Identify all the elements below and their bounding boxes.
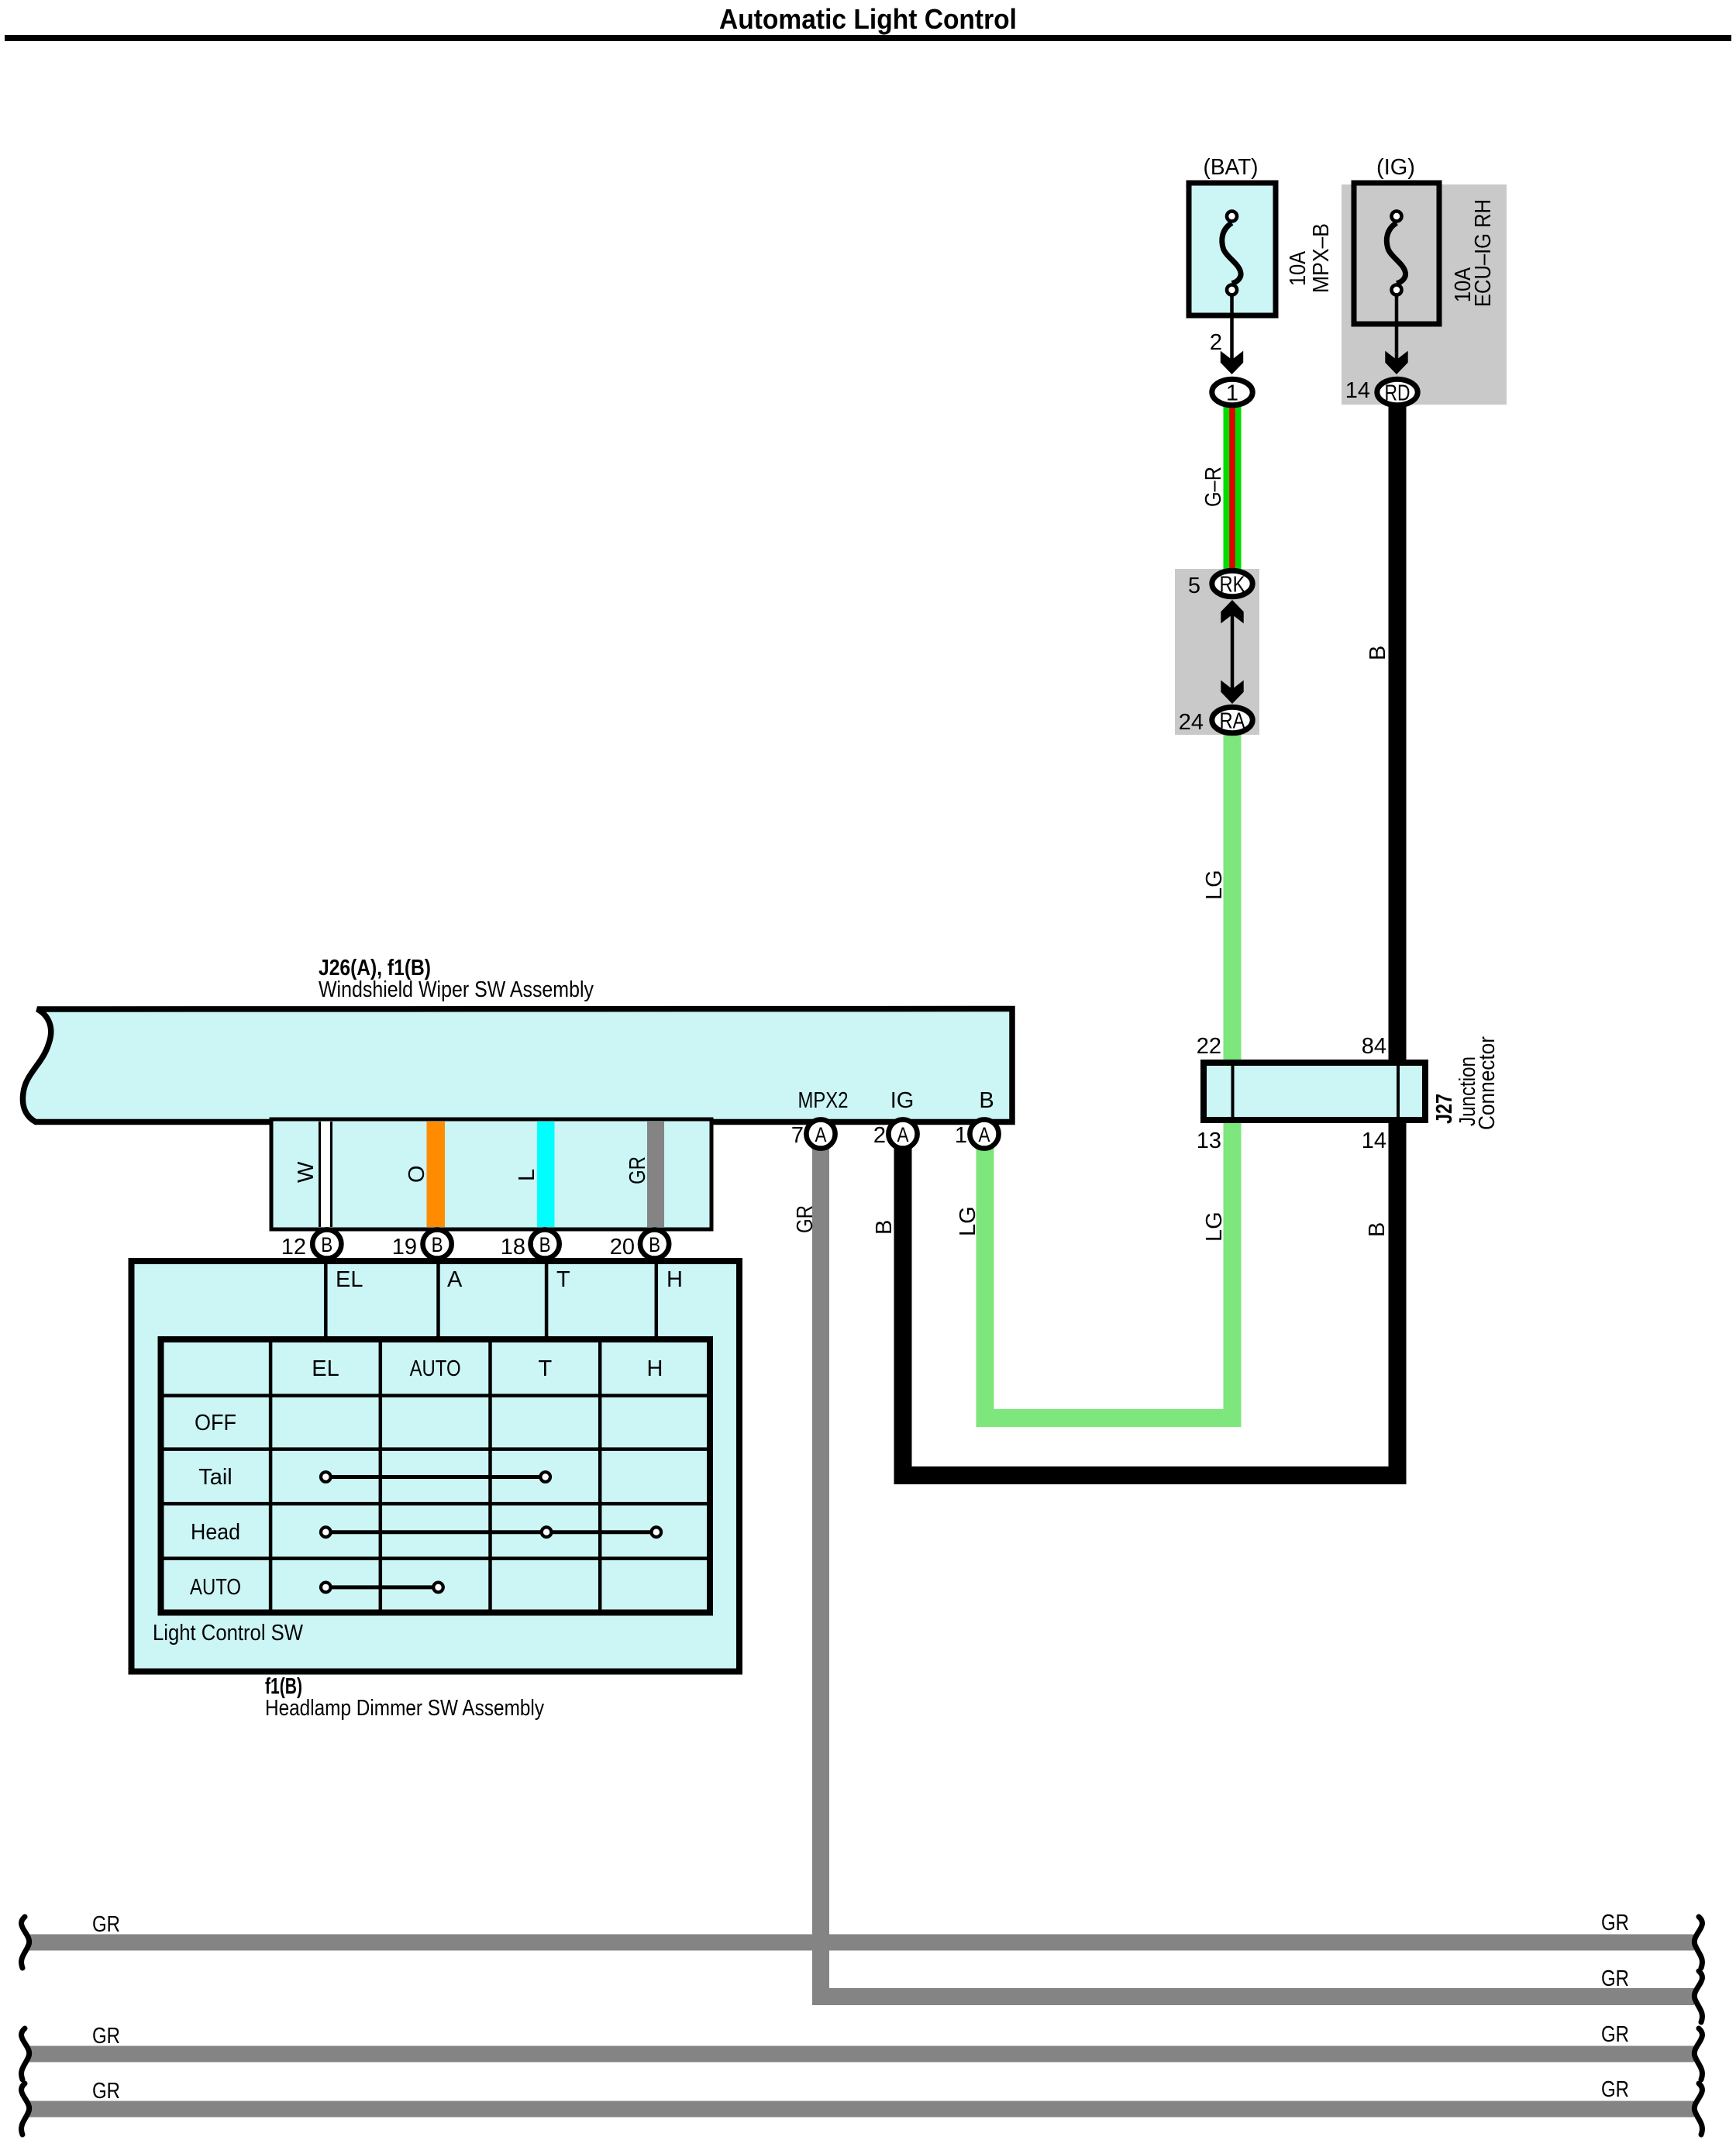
svg-text:A: A: [897, 1123, 909, 1146]
svg-text:LG: LG: [1202, 1211, 1227, 1242]
svg-text:1: 1: [1226, 381, 1238, 406]
svg-text:GR: GR: [1601, 1911, 1629, 1935]
svg-text:GR: GR: [92, 2024, 120, 2049]
svg-text:5: 5: [1188, 574, 1200, 598]
svg-text:B: B: [1366, 646, 1390, 660]
svg-text:Head: Head: [191, 1520, 240, 1545]
svg-text:Connector: Connector: [1475, 1036, 1500, 1130]
svg-text:W: W: [294, 1161, 319, 1183]
svg-text:Automatic Light Control: Automatic Light Control: [719, 3, 1017, 35]
svg-text:G–R: G–R: [1201, 467, 1226, 507]
svg-text:14: 14: [1362, 1129, 1386, 1153]
svg-text:AUTO: AUTO: [190, 1575, 241, 1600]
svg-text:(IG): (IG): [1376, 155, 1415, 180]
svg-text:RK: RK: [1220, 573, 1246, 598]
svg-text:14: 14: [1345, 378, 1370, 403]
svg-text:B: B: [432, 1233, 443, 1256]
svg-text:12: 12: [281, 1235, 306, 1260]
svg-text:OFF: OFF: [195, 1411, 236, 1435]
svg-text:RA: RA: [1220, 709, 1246, 734]
svg-text:L: L: [515, 1169, 539, 1181]
svg-text:19: 19: [392, 1235, 417, 1260]
svg-text:EL: EL: [336, 1267, 363, 1292]
svg-text:B: B: [979, 1088, 994, 1113]
svg-text:H: H: [666, 1267, 683, 1292]
svg-text:GR: GR: [92, 2079, 120, 2104]
svg-text:B: B: [872, 1220, 897, 1235]
svg-text:GR: GR: [625, 1156, 650, 1184]
svg-text:MPX2: MPX2: [798, 1088, 849, 1113]
svg-text:2: 2: [873, 1123, 886, 1148]
svg-text:ECU–IG RH: ECU–IG RH: [1471, 199, 1496, 307]
svg-text:2: 2: [1210, 330, 1222, 355]
svg-text:1: 1: [955, 1123, 967, 1148]
svg-text:A: A: [815, 1123, 827, 1146]
svg-text:Light Control SW: Light Control SW: [153, 1621, 304, 1646]
svg-text:84: 84: [1362, 1034, 1386, 1059]
svg-text:22: 22: [1197, 1034, 1221, 1059]
svg-text:GR: GR: [1601, 1966, 1629, 1991]
svg-text:H: H: [647, 1356, 663, 1381]
svg-text:AUTO: AUTO: [410, 1356, 461, 1381]
svg-text:Windshield Wiper SW Assembly: Windshield Wiper SW Assembly: [319, 977, 594, 1002]
svg-text:A: A: [447, 1267, 463, 1292]
svg-text:LG: LG: [1202, 870, 1227, 900]
svg-text:O: O: [405, 1165, 429, 1183]
svg-text:Headlamp Dimmer SW Assembly: Headlamp Dimmer SW Assembly: [265, 1696, 544, 1721]
svg-text:A: A: [979, 1123, 990, 1146]
svg-text:13: 13: [1197, 1129, 1221, 1153]
svg-text:T: T: [539, 1356, 553, 1381]
svg-text:7: 7: [791, 1123, 804, 1148]
svg-text:T: T: [556, 1267, 570, 1292]
svg-text:GR: GR: [1601, 2022, 1629, 2047]
svg-text:B: B: [321, 1233, 332, 1256]
svg-text:J27: J27: [1432, 1094, 1457, 1124]
svg-text:EL: EL: [312, 1356, 339, 1381]
svg-text:18: 18: [501, 1235, 525, 1260]
svg-text:Tail: Tail: [198, 1465, 232, 1490]
svg-text:IG: IG: [890, 1088, 914, 1113]
svg-text:(BAT): (BAT): [1204, 155, 1259, 180]
svg-text:GR: GR: [92, 1912, 120, 1937]
svg-text:B: B: [1365, 1222, 1390, 1237]
svg-text:20: 20: [610, 1235, 635, 1260]
svg-text:GR: GR: [1601, 2077, 1629, 2102]
svg-text:LG: LG: [956, 1206, 980, 1236]
svg-text:24: 24: [1179, 710, 1204, 735]
svg-text:RD: RD: [1385, 381, 1410, 406]
svg-text:B: B: [539, 1233, 551, 1256]
svg-text:GR: GR: [793, 1205, 818, 1233]
svg-text:B: B: [649, 1233, 660, 1256]
svg-text:MPX–B: MPX–B: [1309, 223, 1334, 293]
svg-text:10A: 10A: [1286, 250, 1311, 286]
